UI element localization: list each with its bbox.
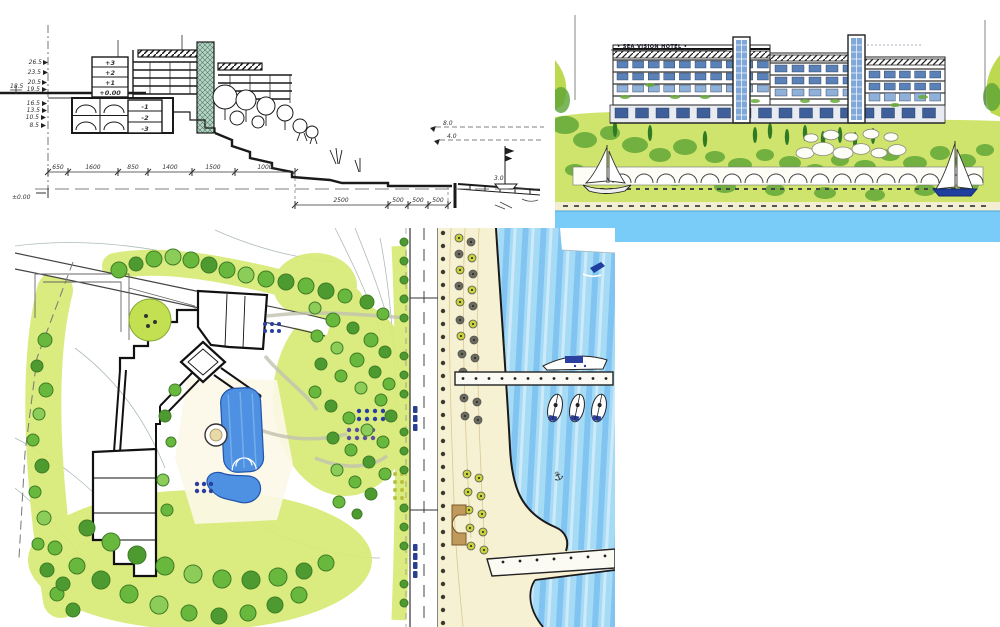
floor-label: -1: [141, 103, 148, 111]
drawing-collage: 26.5 23.5 20.5 19.5 16.5 13.5 10.5 8.5 1…: [0, 0, 1000, 627]
elevation-mark: 10.5: [26, 114, 40, 121]
elevation-mark: 16.5: [27, 100, 41, 107]
shore-mark: 3.0: [494, 175, 504, 182]
slope-mark: 4.0: [447, 133, 457, 140]
dimension: 650: [52, 164, 64, 171]
floor-label: +1: [105, 79, 115, 87]
elevation-mark: 26.5: [29, 59, 43, 66]
section-dimensions: 650 1600 850 1400 1500 1000 ±0.00 2500 5…: [12, 164, 540, 209]
datum-label: ±0.00: [12, 194, 31, 201]
dimension: 500: [432, 197, 444, 204]
jacuzzi: [205, 424, 227, 446]
floor-label: +3: [105, 59, 115, 67]
floor-label: +0.00: [99, 89, 121, 97]
dimension: 500: [412, 197, 424, 204]
elevation-mark: 8.5: [29, 122, 39, 129]
dimension: 500: [392, 197, 404, 204]
floor-label: -3: [141, 125, 149, 133]
hotel-rendering-panel: • SEA VISION HOTEL •: [555, 5, 1000, 242]
dimension: 1400: [162, 164, 177, 171]
coast-road: [406, 228, 438, 627]
hotel-building: • SEA VISION HOTEL •: [575, 15, 985, 123]
section-slope-marks: 8.0 4.0 3.0: [430, 120, 544, 182]
elevation-mark: 23.5: [28, 69, 42, 76]
floor-label: +2: [105, 69, 115, 77]
section-sketch-panel: 26.5 23.5 20.5 19.5 16.5 13.5 10.5 8.5 1…: [0, 0, 545, 232]
road-level-mark: 18.5: [10, 83, 24, 90]
section-slope: [213, 85, 452, 186]
elevation-mark: 19.5: [27, 86, 41, 93]
floor-label: -2: [141, 114, 149, 122]
glass-tower: [848, 35, 865, 123]
moored-sailboats: [545, 393, 609, 423]
dimension: 1000: [257, 164, 272, 171]
swimming-pool: [220, 387, 264, 473]
slope-mark: 8.0: [443, 120, 453, 127]
elevation-mark: 20.5: [28, 79, 42, 86]
sea: [555, 211, 1000, 242]
glass-tower: [733, 37, 750, 123]
dimension: 1600: [85, 164, 100, 171]
dimension: 2500: [333, 197, 348, 204]
round-lawn: [129, 299, 171, 341]
dimension: 1500: [205, 164, 220, 171]
site-plan-panel: ⚓: [15, 228, 615, 627]
dimension: 850: [127, 164, 139, 171]
hotel-sign: • SEA VISION HOTEL •: [617, 44, 687, 50]
elevation-mark: 13.5: [27, 107, 41, 114]
